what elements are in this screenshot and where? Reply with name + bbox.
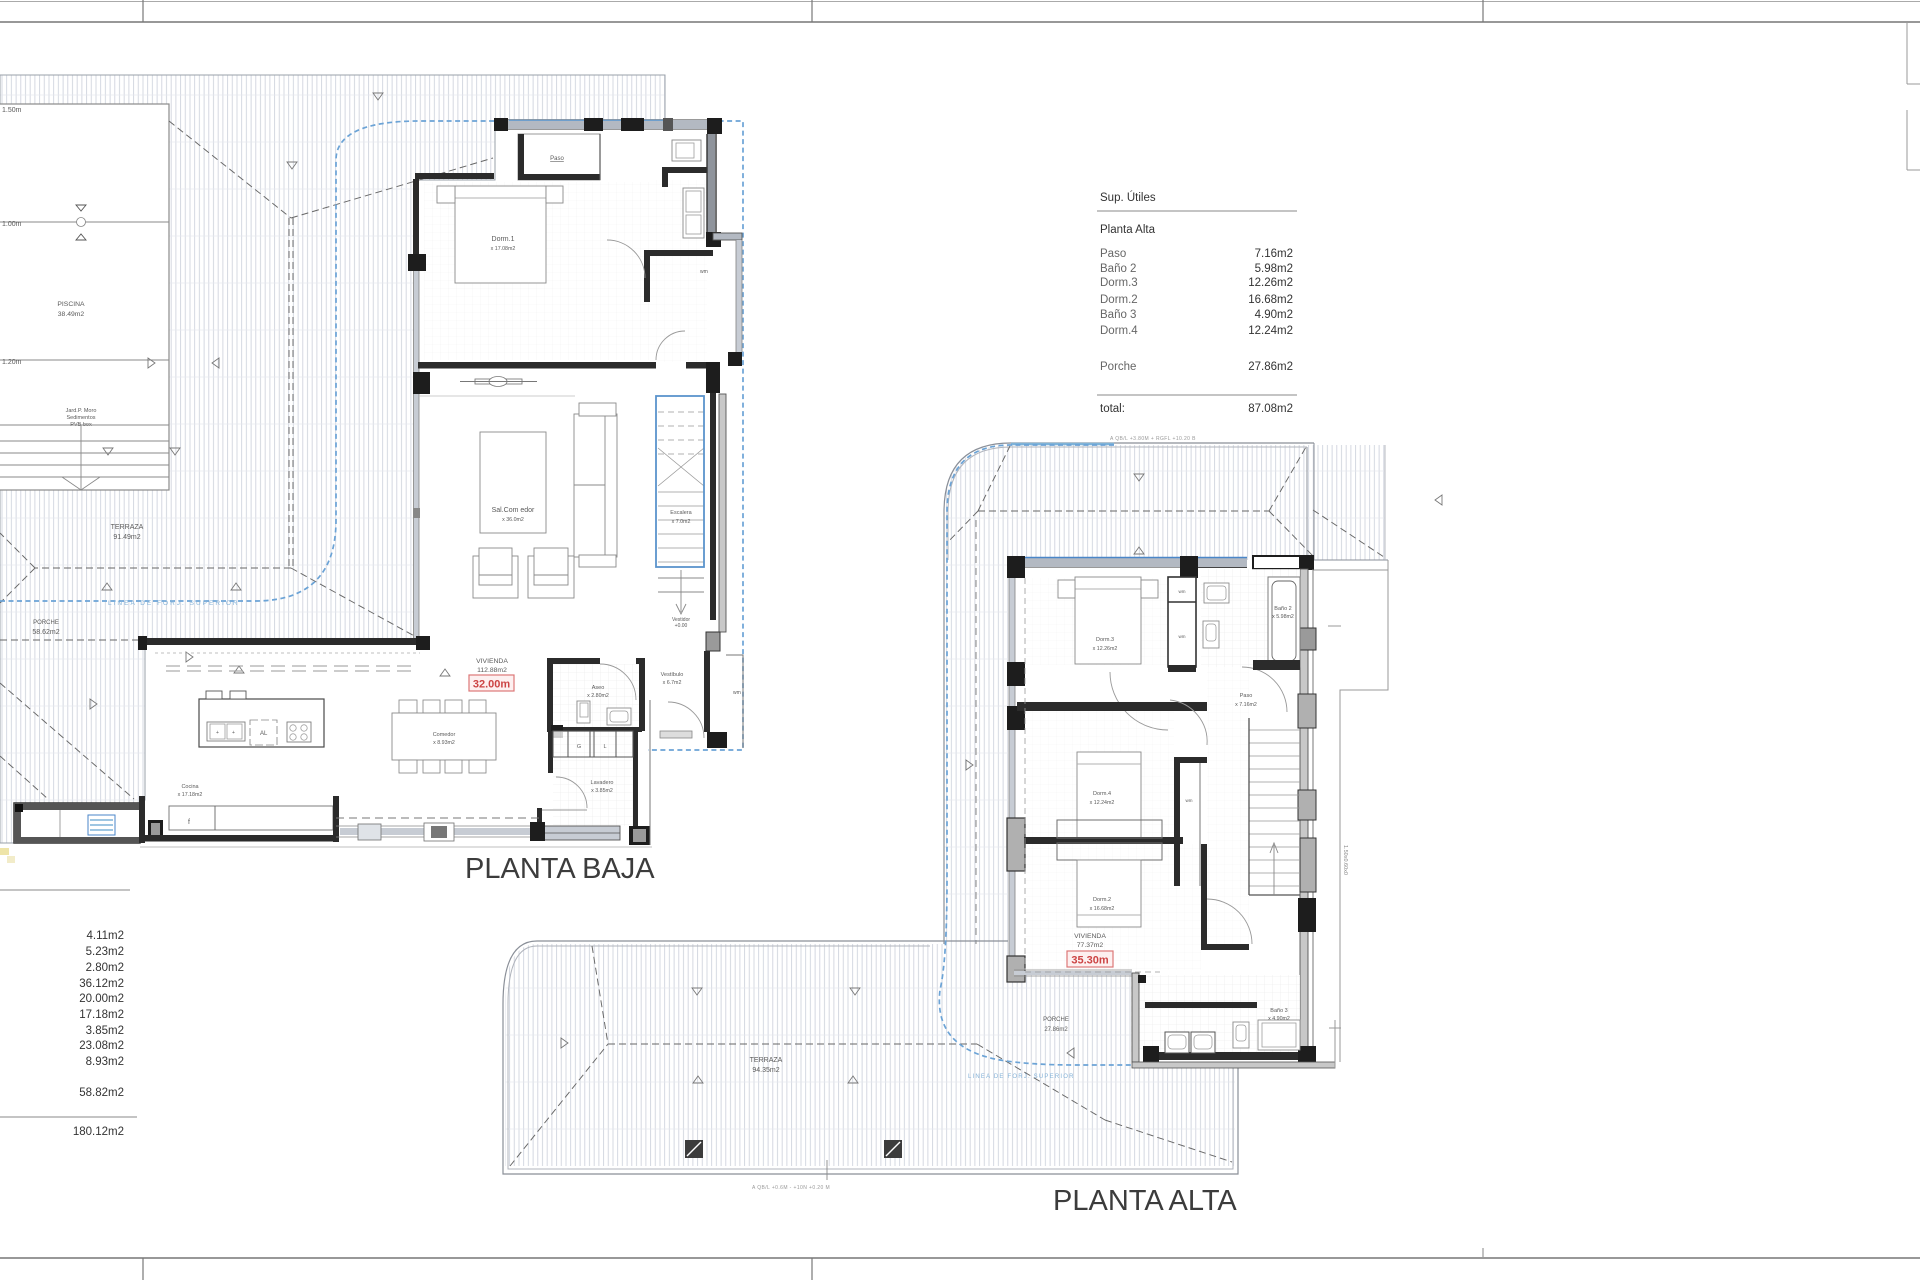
svg-text:LINEA DE FORJ. SUPERIOR: LINEA DE FORJ. SUPERIOR	[108, 600, 240, 607]
svg-text:f: f	[188, 819, 190, 826]
svg-text:A QB/L +3.80M + RGFL +10.20 B: A QB/L +3.80M + RGFL +10.20 B	[1110, 436, 1196, 442]
svg-text:16.68m2: 16.68m2	[1248, 294, 1293, 306]
svg-text:L: L	[603, 744, 606, 750]
svg-text:Cocina: Cocina	[181, 784, 199, 790]
svg-text:58.62m2: 58.62m2	[32, 629, 59, 636]
svg-text:5.23m2: 5.23m2	[86, 946, 124, 958]
svg-text:PLANTA BAJA: PLANTA BAJA	[465, 853, 655, 885]
svg-text:Baño 3: Baño 3	[1100, 309, 1136, 321]
svg-text:LINEA DE FORJ. SUPERIOR: LINEA DE FORJ. SUPERIOR	[968, 1074, 1075, 1080]
svg-text:x 12.26m2: x 12.26m2	[1093, 646, 1118, 652]
svg-text:x 7.0m2: x 7.0m2	[672, 519, 691, 525]
svg-text:Aseo: Aseo	[592, 685, 605, 691]
svg-text:4.90m2: 4.90m2	[1255, 309, 1293, 321]
svg-text:112.88m2: 112.88m2	[477, 667, 507, 674]
svg-text:VIVIENDA: VIVIENDA	[1074, 933, 1106, 940]
svg-text:Dorm.1: Dorm.1	[492, 236, 515, 243]
svg-text:87.08m2: 87.08m2	[1248, 403, 1293, 415]
svg-text:180.12m2: 180.12m2	[73, 1126, 124, 1138]
svg-text:PLANTA ALTA: PLANTA ALTA	[1053, 1185, 1237, 1217]
svg-text:x 7.16m2: x 7.16m2	[1235, 702, 1257, 708]
svg-text:Planta Alta: Planta Alta	[1100, 224, 1156, 236]
svg-text:32.00m: 32.00m	[473, 679, 511, 691]
svg-text:Escalera: Escalera	[670, 510, 692, 516]
svg-text:Sal.Com edor: Sal.Com edor	[492, 507, 535, 514]
svg-text:12.24m2: 12.24m2	[1248, 325, 1293, 337]
svg-text:4.11m2: 4.11m2	[86, 930, 124, 942]
svg-text:wm: wm	[700, 269, 708, 275]
svg-text:Dorm.4: Dorm.4	[1100, 325, 1138, 337]
svg-text:x 4.90m2: x 4.90m2	[1268, 1016, 1290, 1022]
svg-text:x 2.80m2: x 2.80m2	[587, 693, 609, 699]
svg-text:Porche: Porche	[1100, 361, 1136, 373]
svg-text:1.00m: 1.00m	[2, 221, 22, 228]
svg-text:Jard.P. Moro: Jard.P. Moro	[66, 408, 97, 414]
svg-text:total:: total:	[1100, 403, 1125, 415]
svg-text:TERRAZA: TERRAZA	[750, 1057, 783, 1064]
svg-text:Sup. Útiles: Sup. Útiles	[1100, 191, 1156, 204]
svg-text:Vestíbulo: Vestíbulo	[661, 672, 684, 678]
svg-text:20.00m2: 20.00m2	[79, 993, 124, 1005]
svg-text:A QB/L +0.6M - +10N +0.20 M: A QB/L +0.6M - +10N +0.20 M	[752, 1185, 830, 1191]
svg-text:Dorm.3: Dorm.3	[1096, 637, 1114, 643]
svg-text:wm: wm	[1179, 589, 1186, 594]
svg-text:91.49m2: 91.49m2	[113, 534, 140, 541]
svg-text:77.37m2: 77.37m2	[1077, 942, 1104, 949]
svg-text:x 36.0m2: x 36.0m2	[502, 517, 524, 523]
svg-text:2.80m2: 2.80m2	[86, 962, 124, 974]
svg-text:x 6.7m2: x 6.7m2	[663, 680, 682, 686]
svg-text:PORCHE: PORCHE	[1043, 1017, 1069, 1023]
svg-text:+: +	[232, 730, 235, 736]
svg-text:x 17.18m2: x 17.18m2	[178, 792, 203, 798]
svg-text:Baño 2: Baño 2	[1100, 263, 1136, 275]
svg-text:1.50m: 1.50m	[2, 107, 22, 114]
svg-text:1.20m: 1.20m	[2, 359, 22, 366]
svg-text:Paso: Paso	[1240, 693, 1253, 699]
svg-text:35.30m: 35.30m	[1071, 955, 1109, 967]
svg-text:12.26m2: 12.26m2	[1248, 277, 1293, 289]
svg-text:Baño 2: Baño 2	[1274, 606, 1291, 612]
svg-text:wm: wm	[1179, 634, 1186, 639]
svg-text:VIVIENDA: VIVIENDA	[476, 658, 508, 665]
svg-text:Dorm.2: Dorm.2	[1093, 897, 1111, 903]
svg-text:wm: wm	[1186, 798, 1193, 803]
svg-text:x 17.08m2: x 17.08m2	[491, 246, 516, 252]
svg-text:5.98m2: 5.98m2	[1255, 263, 1293, 275]
svg-text:Lavadero: Lavadero	[591, 780, 614, 786]
svg-text:17.18m2: 17.18m2	[79, 1009, 124, 1021]
svg-text:PORCHE: PORCHE	[33, 620, 59, 626]
svg-text:36.12m2: 36.12m2	[79, 978, 124, 990]
svg-text:3.85m2: 3.85m2	[86, 1025, 124, 1037]
svg-text:Paso: Paso	[1100, 248, 1126, 260]
svg-text:+: +	[216, 730, 219, 736]
svg-text:PISCINA: PISCINA	[57, 301, 85, 308]
svg-text:x 8.93m2: x 8.93m2	[433, 740, 455, 746]
svg-text:x 16.68m2: x 16.68m2	[1090, 906, 1115, 912]
svg-text:wm: wm	[733, 690, 741, 696]
svg-text:x 12.24m2: x 12.24m2	[1090, 800, 1115, 806]
svg-text:1.50x0.60x0: 1.50x0.60x0	[1342, 845, 1348, 875]
svg-text:Dorm.3: Dorm.3	[1100, 277, 1138, 289]
svg-text:Comedor: Comedor	[433, 732, 456, 738]
svg-text:8.93m2: 8.93m2	[86, 1056, 124, 1068]
svg-text:Paso: Paso	[550, 156, 564, 162]
svg-text:27.86m2: 27.86m2	[1248, 361, 1293, 373]
svg-text:Sedimentos: Sedimentos	[66, 415, 95, 421]
svg-text:TERRAZA: TERRAZA	[111, 524, 144, 531]
svg-text:x 5.98m2: x 5.98m2	[1272, 614, 1294, 620]
svg-text:94.35m2: 94.35m2	[752, 1067, 779, 1074]
svg-text:Dorm.4: Dorm.4	[1093, 791, 1111, 797]
svg-text:Dorm.2: Dorm.2	[1100, 294, 1138, 306]
svg-text:G: G	[577, 744, 581, 750]
svg-text:27.86m2: 27.86m2	[1044, 1027, 1068, 1033]
svg-text:+0.00: +0.00	[675, 623, 688, 629]
svg-text:x 3.85m2: x 3.85m2	[591, 788, 613, 794]
svg-text:AL: AL	[260, 731, 268, 737]
svg-text:23.08m2: 23.08m2	[79, 1040, 124, 1052]
svg-text:38.49m2: 38.49m2	[58, 311, 85, 318]
svg-text:7.16m2: 7.16m2	[1255, 248, 1293, 260]
svg-text:Baño 3: Baño 3	[1270, 1008, 1287, 1014]
svg-text:58.82m2: 58.82m2	[79, 1087, 124, 1099]
